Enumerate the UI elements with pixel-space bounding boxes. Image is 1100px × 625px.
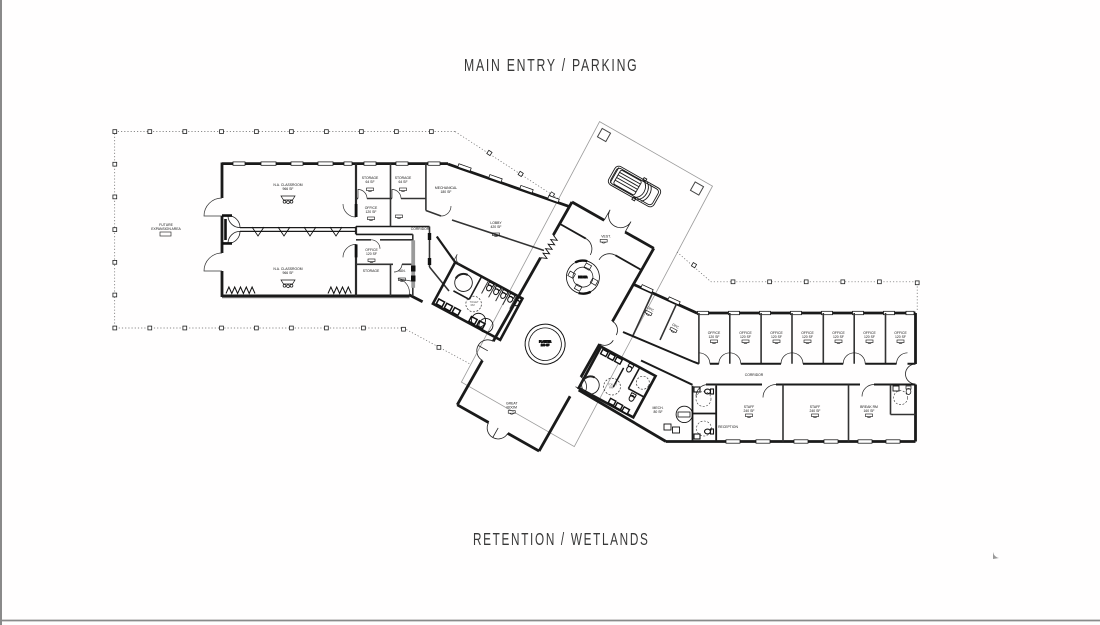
svg-text:64 SF: 64 SF (365, 180, 374, 184)
svg-text:80 SF: 80 SF (653, 410, 662, 414)
svg-text:420 SF: 420 SF (491, 225, 502, 229)
svg-text:CORRIDOR: CORRIDOR (745, 373, 764, 377)
svg-text:RM: RM (471, 303, 475, 307)
svg-text:240 SF: 240 SF (744, 409, 755, 413)
svg-text:JAN.: JAN. (398, 269, 405, 273)
svg-text:120 SF: 120 SF (740, 335, 751, 339)
svg-text:MAIN ENTRY / PARKING: MAIN ENTRY / PARKING (464, 56, 638, 76)
svg-text:ROOM: ROOM (506, 406, 517, 410)
svg-text:VEST.: VEST. (601, 234, 610, 238)
svg-text:160 SF: 160 SF (541, 343, 550, 347)
svg-text:120 SF: 120 SF (895, 335, 906, 339)
svg-text:120 SF: 120 SF (864, 335, 875, 339)
svg-text:120 SF: 120 SF (833, 335, 844, 339)
svg-text:120 SF: 120 SF (771, 335, 782, 339)
svg-text:966 SF: 966 SF (283, 271, 294, 275)
svg-text:CORRIDOR: CORRIDOR (411, 227, 430, 231)
svg-text:RM: RM (609, 385, 613, 389)
svg-text:RETENTION / WETLANDS: RETENTION / WETLANDS (473, 531, 650, 550)
svg-text:RECEP.: RECEP. (578, 275, 588, 279)
svg-text:RECEPTION: RECEPTION (718, 425, 738, 429)
svg-text:120 SF: 120 SF (802, 335, 813, 339)
svg-text:120 SF: 120 SF (366, 210, 377, 214)
svg-text:PLANTER: PLANTER (539, 340, 551, 344)
svg-text:966 SF: 966 SF (283, 187, 294, 191)
svg-text:180 SF: 180 SF (441, 190, 452, 194)
svg-text:120 SF: 120 SF (709, 335, 720, 339)
svg-text:160 SF: 160 SF (864, 409, 875, 413)
svg-text:240 SF: 240 SF (810, 409, 821, 413)
svg-text:EXPANSION AREA: EXPANSION AREA (151, 227, 181, 231)
svg-text:STORAGE: STORAGE (363, 269, 380, 273)
svg-text:120 SF: 120 SF (366, 252, 377, 256)
svg-text:64 SF: 64 SF (398, 180, 407, 184)
